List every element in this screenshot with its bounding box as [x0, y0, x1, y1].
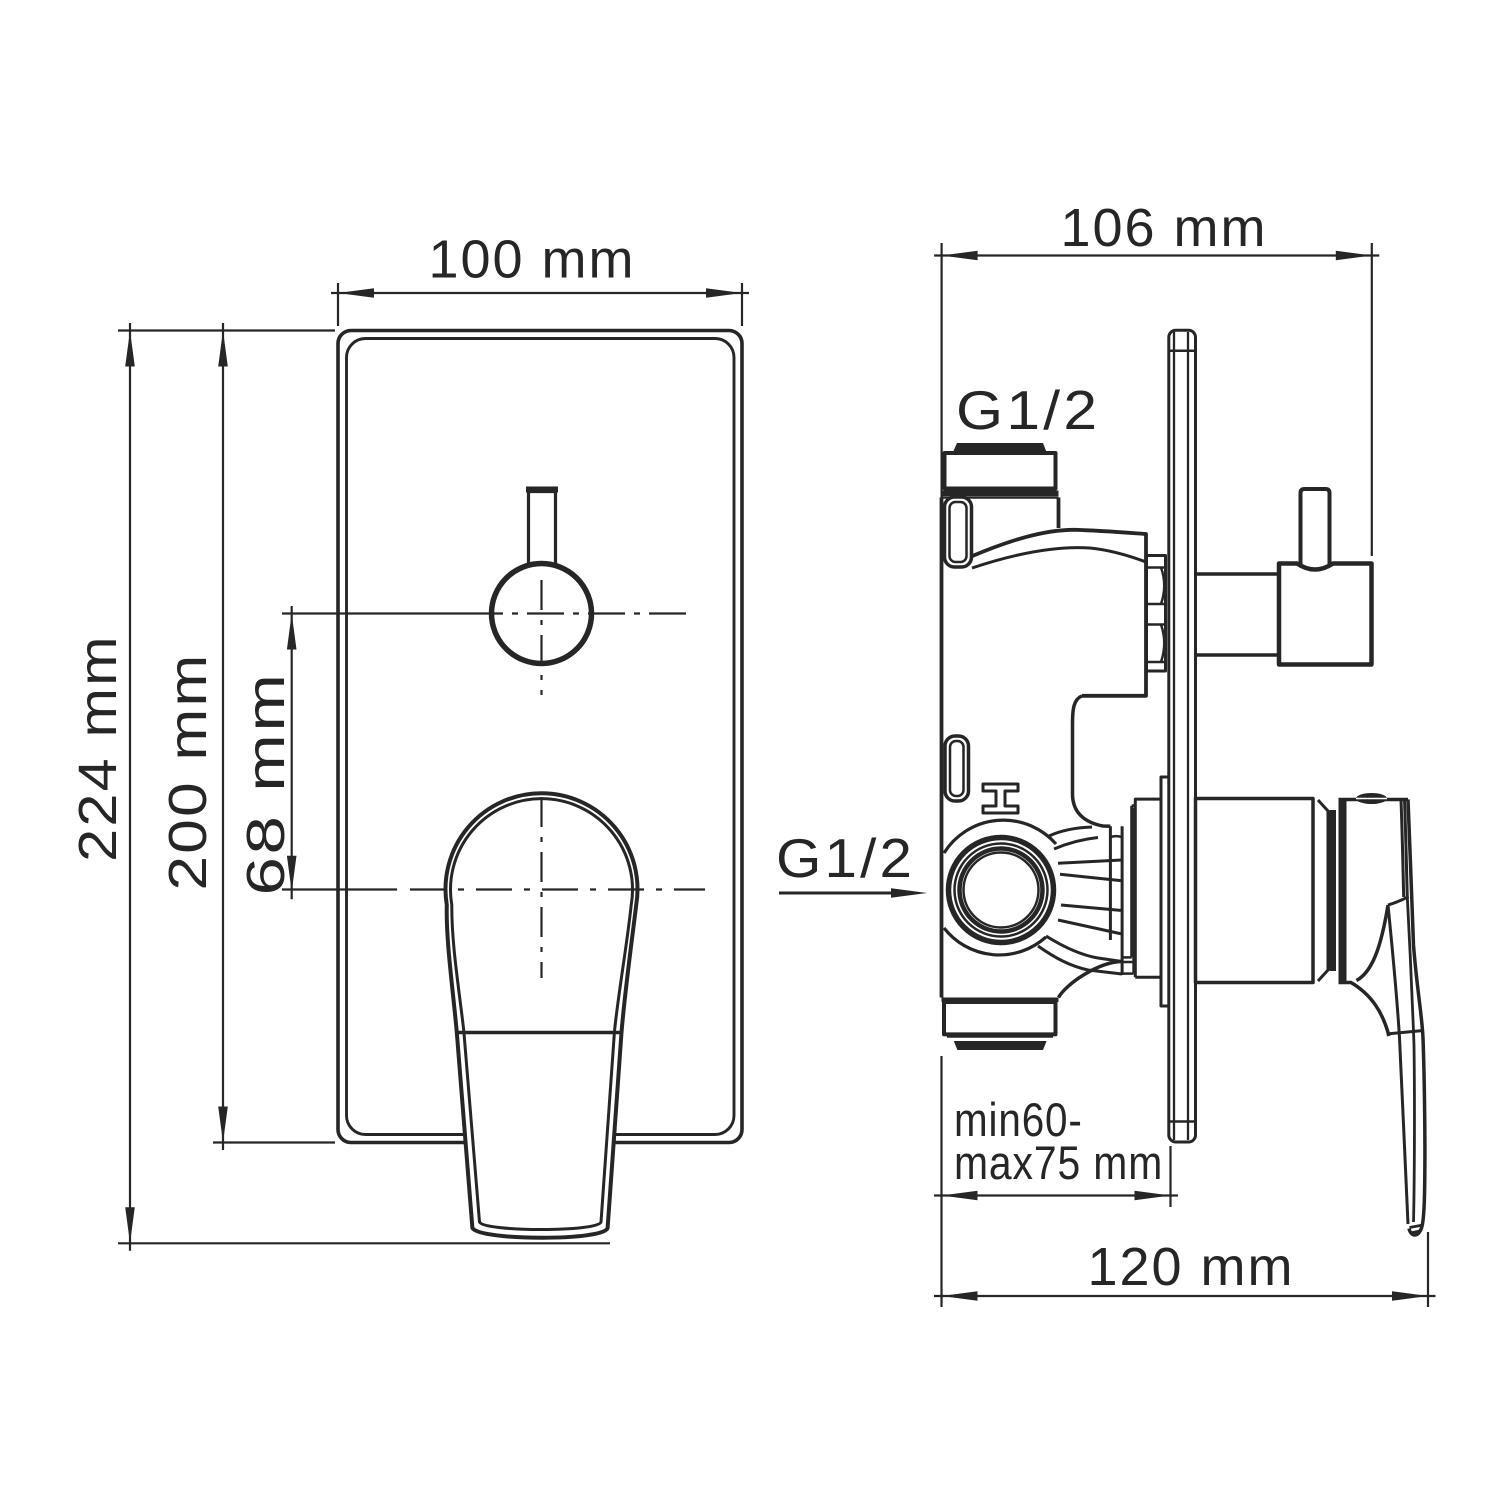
svg-text:200 mm: 200 mm — [158, 652, 218, 890]
svg-text:100 mm: 100 mm — [428, 230, 635, 290]
svg-text:224 mm: 224 mm — [68, 634, 128, 862]
svg-text:G1/2: G1/2 — [956, 380, 1100, 441]
svg-text:120 mm: 120 mm — [1087, 1237, 1294, 1297]
svg-text:68 mm: 68 mm — [236, 671, 296, 895]
svg-text:max75 mm: max75 mm — [954, 1137, 1163, 1189]
svg-text:106 mm: 106 mm — [1060, 198, 1267, 258]
svg-text:G1/2: G1/2 — [776, 828, 915, 889]
